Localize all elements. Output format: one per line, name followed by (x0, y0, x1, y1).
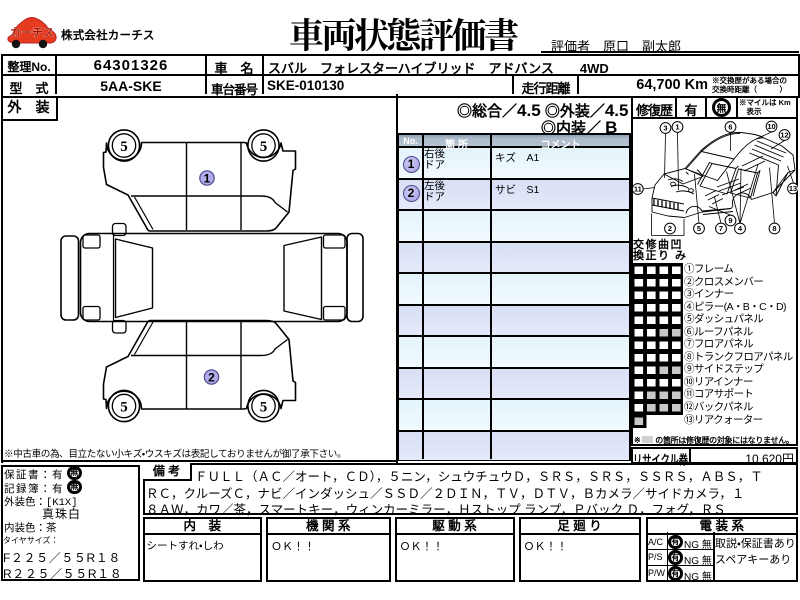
svg-text:2: 2 (208, 371, 215, 385)
svg-text:2: 2 (668, 224, 672, 233)
svg-text:8: 8 (772, 224, 776, 233)
svg-text:3: 3 (663, 124, 667, 133)
svg-text:9: 9 (728, 216, 732, 225)
svg-text:5: 5 (260, 400, 268, 416)
svg-text:5: 5 (120, 400, 128, 416)
svg-text:カーチス: カーチス (10, 26, 54, 39)
svg-text:7: 7 (719, 224, 723, 233)
svg-text:12: 12 (780, 131, 788, 140)
svg-text:1: 1 (204, 172, 211, 186)
svg-text:5: 5 (120, 139, 128, 155)
svg-text:6: 6 (728, 123, 732, 132)
svg-text:13: 13 (789, 184, 797, 193)
svg-text:11: 11 (634, 185, 642, 194)
svg-text:5: 5 (697, 224, 701, 233)
svg-text:10: 10 (767, 122, 775, 131)
svg-text:1: 1 (675, 123, 679, 132)
svg-text:5: 5 (260, 139, 268, 155)
